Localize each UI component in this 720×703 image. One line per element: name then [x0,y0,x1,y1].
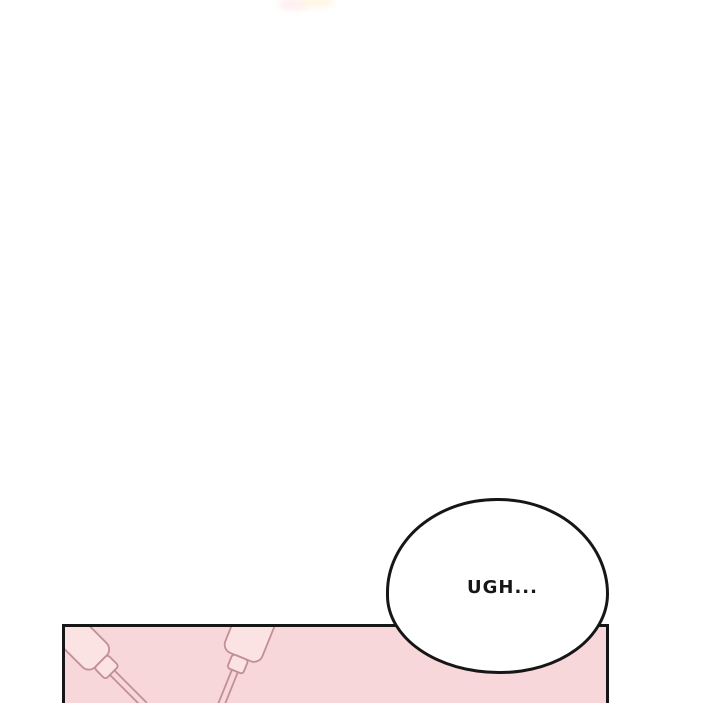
charger-cable-center-icon [198,627,278,703]
comic-page: UGH... [0,0,720,700]
top-paint-smudge [278,0,336,14]
smudge-pink-blob [278,0,310,11]
speech-bubble: UGH... [386,498,609,674]
smudge-cream-blob [300,0,334,8]
charger-cable-left-icon [65,627,156,703]
speech-bubble-text: UGH... [457,575,538,598]
